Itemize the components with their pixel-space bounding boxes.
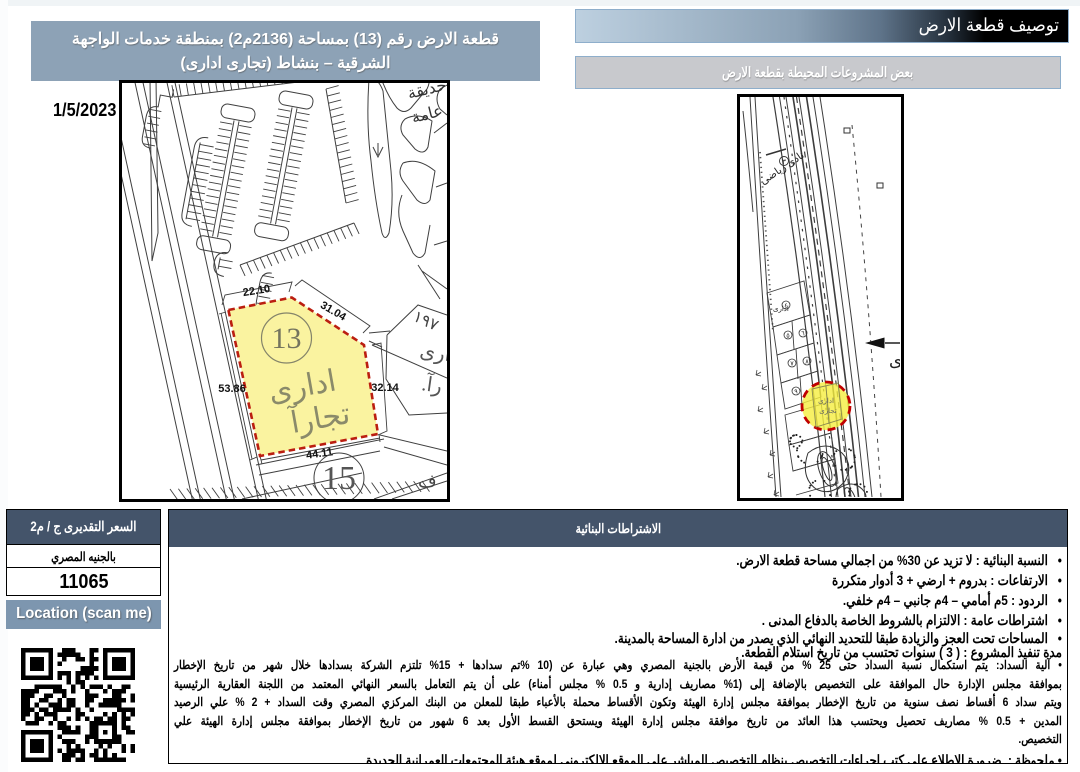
svg-text:13: 13: [272, 322, 302, 355]
svg-text:٧: ٧: [790, 361, 794, 368]
svg-text:ى: ى: [889, 351, 900, 370]
svg-text:تجارى: تجارى: [819, 407, 837, 415]
svg-text:١٩٧: ١٩٧: [410, 308, 441, 334]
svg-text:٣: ٣: [782, 159, 786, 166]
svg-text:٦: ٦: [801, 331, 805, 338]
svg-text:ف: ف: [418, 471, 437, 491]
svg-text:53.86: 53.86: [218, 383, 246, 395]
svg-text:٥: ٥: [786, 333, 790, 340]
svg-text:ادارى: ادارى: [818, 397, 834, 405]
svg-text:٩: ٩: [794, 389, 798, 396]
svg-text:٨: ٨: [805, 359, 809, 366]
svg-text:حديقة: حديقة: [406, 83, 447, 103]
svg-text:15: 15: [322, 460, 356, 497]
svg-text:ارى: ارى: [418, 340, 447, 366]
svg-text:عامة: عامة: [410, 103, 445, 127]
svg-text:32.14: 32.14: [371, 382, 399, 394]
svg-text:22.10: 22.10: [242, 283, 271, 299]
svg-text:ادارى: ادارى: [773, 305, 789, 313]
